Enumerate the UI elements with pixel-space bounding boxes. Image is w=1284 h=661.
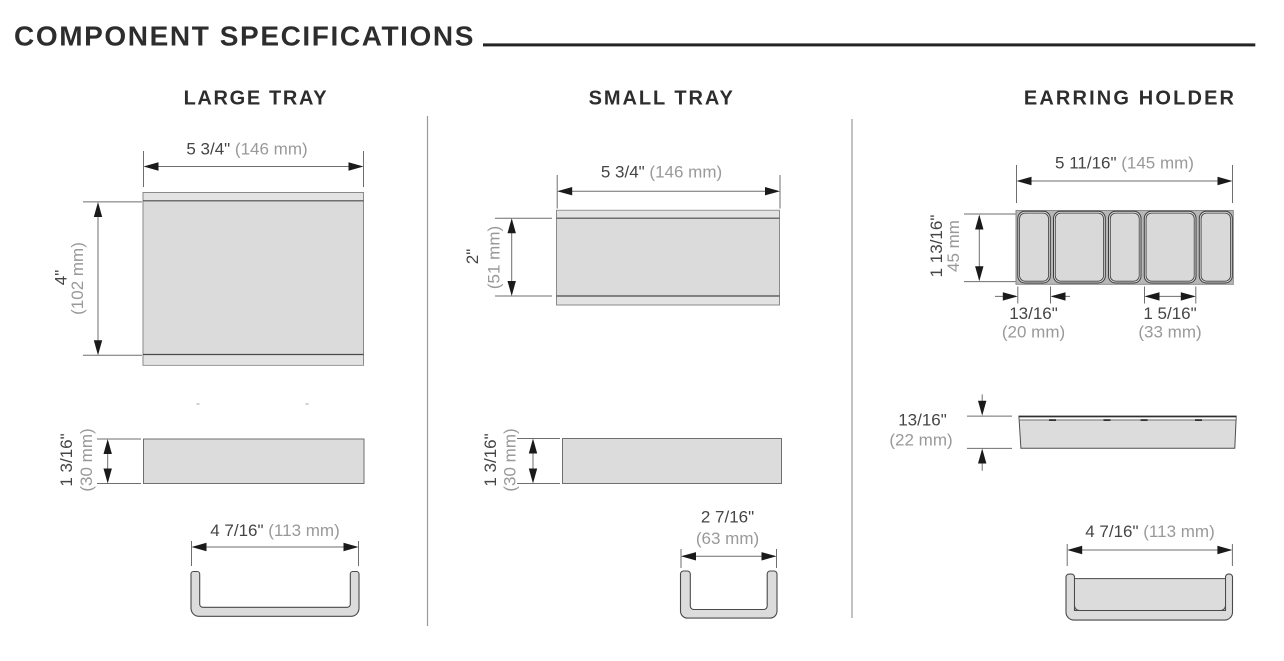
svg-text:1 3/16": 1 3/16" — [481, 433, 500, 486]
svg-text:(63 mm): (63 mm) — [696, 529, 759, 548]
svg-text:5 3/4" (146 mm): 5 3/4" (146 mm) — [601, 163, 722, 182]
svg-text:(33 mm): (33 mm) — [1138, 323, 1201, 342]
svg-text:2": 2" — [463, 249, 482, 265]
svg-text:45 mm: 45 mm — [944, 220, 963, 272]
svg-text:COMPONENT SPECIFICATIONS: COMPONENT SPECIFICATIONS — [14, 20, 475, 51]
svg-text:(30 mm): (30 mm) — [501, 428, 520, 491]
svg-text:4 7/16" (113 mm): 4 7/16" (113 mm) — [1085, 522, 1215, 541]
svg-text:13/16": 13/16" — [1009, 304, 1058, 323]
svg-text:SMALL TRAY: SMALL TRAY — [589, 87, 735, 109]
svg-text:(102 mm): (102 mm) — [68, 242, 87, 315]
svg-text:(20 mm): (20 mm) — [1002, 323, 1065, 342]
svg-text:(30 mm): (30 mm) — [77, 428, 96, 491]
svg-text:4 7/16" (113 mm): 4 7/16" (113 mm) — [210, 521, 340, 540]
svg-text:5 11/16" (145 mm): 5 11/16" (145 mm) — [1055, 154, 1194, 173]
svg-text:1 5/16": 1 5/16" — [1143, 304, 1196, 323]
svg-text:(51 mm): (51 mm) — [485, 226, 504, 289]
svg-text:EARRING HOLDER: EARRING HOLDER — [1024, 87, 1236, 109]
svg-text:LARGE TRAY: LARGE TRAY — [184, 87, 329, 109]
svg-text:13/16": 13/16" — [898, 411, 947, 430]
svg-text:2 7/16": 2 7/16" — [701, 508, 754, 527]
svg-text:1 3/16": 1 3/16" — [57, 433, 76, 486]
svg-text:(22 mm): (22 mm) — [889, 431, 952, 450]
svg-text:5 3/4" (146 mm): 5 3/4" (146 mm) — [186, 140, 307, 159]
